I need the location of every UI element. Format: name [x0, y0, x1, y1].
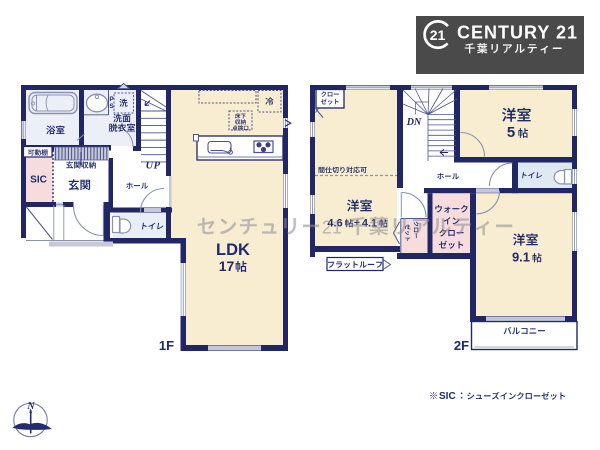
svg-text:S: S: [109, 103, 114, 110]
svg-text:2F: 2F: [454, 338, 469, 353]
svg-text:17: 17: [219, 258, 235, 274]
svg-text:21: 21: [430, 27, 446, 43]
svg-text:CENTURY 21: CENTURY 21: [457, 23, 578, 43]
svg-text:21: 21: [322, 218, 342, 238]
svg-text:LDK: LDK: [216, 241, 250, 259]
svg-text:1F: 1F: [159, 338, 174, 353]
svg-text:SIC: SIC: [30, 175, 47, 186]
svg-text:UP: UP: [146, 161, 161, 172]
svg-text:SIC: SIC: [439, 391, 456, 402]
svg-text:5: 5: [507, 124, 515, 141]
svg-text:DN: DN: [406, 117, 422, 128]
svg-text:9.1: 9.1: [512, 250, 530, 265]
svg-text:P: P: [109, 96, 114, 103]
